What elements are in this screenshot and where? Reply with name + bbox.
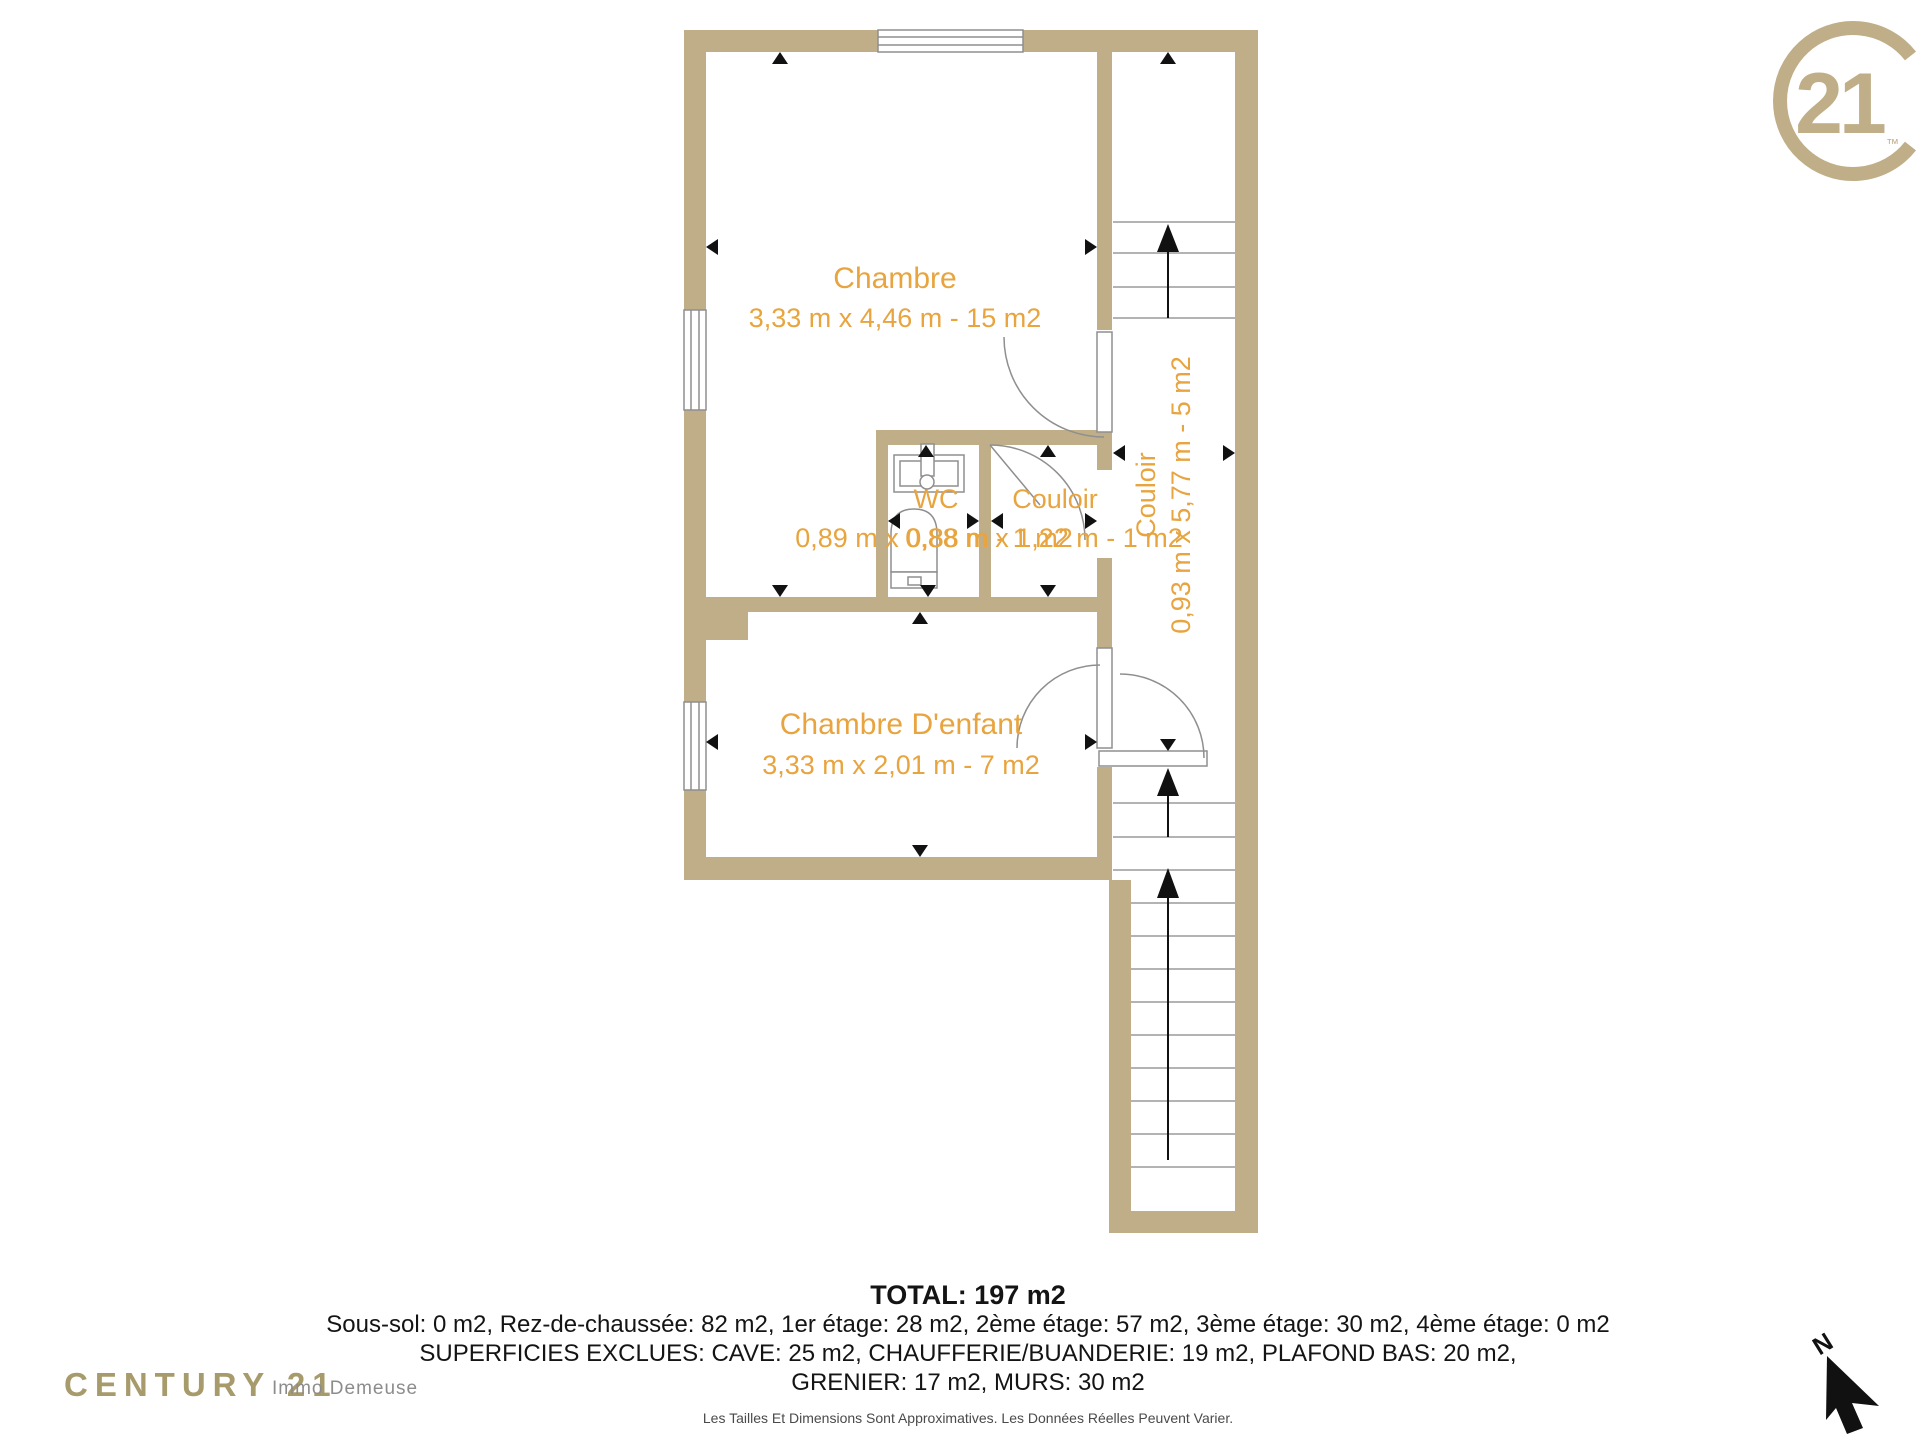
door-arc-chambre [1004,337,1104,437]
room-label-wc: WC [914,484,959,514]
door-arc-corridor [1120,674,1204,758]
staircase-upper [1113,222,1235,318]
window-top [878,30,1023,52]
total-area: TOTAL: 197 m2 [8,1280,1920,1310]
agency-name: Immo Demeuse [272,1378,418,1400]
windows [684,30,1023,790]
wall-wc-couloir-divider [979,445,991,597]
seal-tm: ™ [1886,136,1899,151]
wall-divider-mid1 [1097,430,1112,470]
door-leaf-chambre [1097,332,1112,432]
window-left-lower [684,702,706,790]
century21-seal: 21 ™ [1780,28,1910,174]
room-label-chambre-enfant: Chambre D'enfant [780,708,1023,741]
door-threshold-corridor [1099,751,1207,766]
room-dims-chambre-enfant: 3,33 m x 2,01 m - 7 m2 [762,750,1040,780]
door-leaf-chambre-enfant [1097,648,1112,748]
room-label-chambre: Chambre [833,262,956,295]
room-label-couloir-vertical: Couloir [1131,452,1161,538]
room-dims-couloir-vertical: 0,93 m x 5,77 m - 5 m2 [1166,356,1196,634]
toilet-button [908,577,921,585]
room-dims-chambre: 3,33 m x 4,46 m - 15 m2 [749,303,1042,333]
wall-divider-upper [1097,52,1112,330]
wall-step-chunk [706,612,748,640]
window-left-upper [684,310,706,410]
wall-bottom-main [684,857,1109,880]
wc-fixtures [891,444,964,588]
wall-divider-mid2 [1097,558,1112,648]
seal-21-text: 21 [1795,56,1885,152]
wall-corridor-bottom [1109,1211,1258,1233]
floorplan-page: Chambre 3,33 m x 4,46 m - 15 m2 WC 0,89 … [0,0,1920,1440]
wall-wc-top [876,430,1097,445]
floor-areas-line: Sous-sol: 0 m2, Rez-de-chaussée: 82 m2, … [8,1310,1920,1339]
disclaimer-text: Les Tailles Et Dimensions Sont Approxima… [8,1410,1920,1426]
wall-right [1235,30,1258,1233]
wall-chambre-bottom [684,597,1097,612]
room-label-couloir-small: Couloir [1012,484,1098,514]
staircase-lower [1113,803,1235,1167]
floorplan-drawing: Chambre 3,33 m x 4,46 m - 15 m2 WC 0,89 … [0,0,1920,1440]
wall-divider-lower [1097,767,1112,880]
door-arc-chambre-enfant [1017,665,1100,748]
excluded-areas-line: SUPERFICIES EXCLUES: CAVE: 25 m2, CHAUFF… [8,1339,1920,1368]
wall-corridor-left-lower [1109,880,1131,1211]
